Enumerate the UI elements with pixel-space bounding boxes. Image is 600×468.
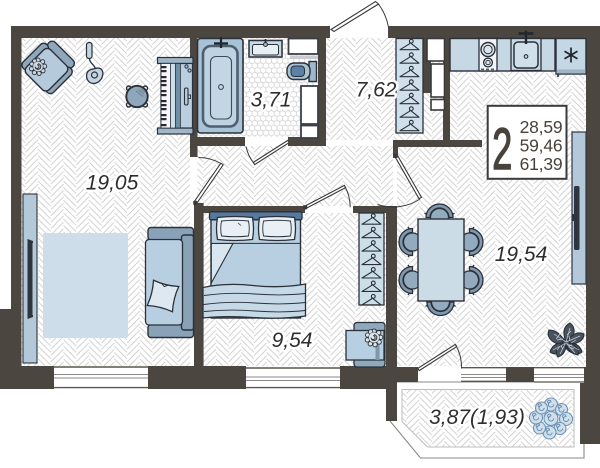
svg-text:9,54: 9,54	[272, 329, 313, 352]
svg-text:61,39: 61,39	[520, 154, 563, 174]
svg-text:2: 2	[492, 117, 512, 182]
svg-text:28,59: 28,59	[520, 117, 563, 137]
svg-text:7,62: 7,62	[356, 79, 397, 102]
svg-text:3,87(1,93): 3,87(1,93)	[429, 406, 525, 429]
svg-text:3,71: 3,71	[251, 89, 292, 112]
svg-text:19,54: 19,54	[495, 243, 548, 266]
svg-text:19,05: 19,05	[86, 172, 139, 195]
svg-text:59,46: 59,46	[520, 136, 563, 156]
